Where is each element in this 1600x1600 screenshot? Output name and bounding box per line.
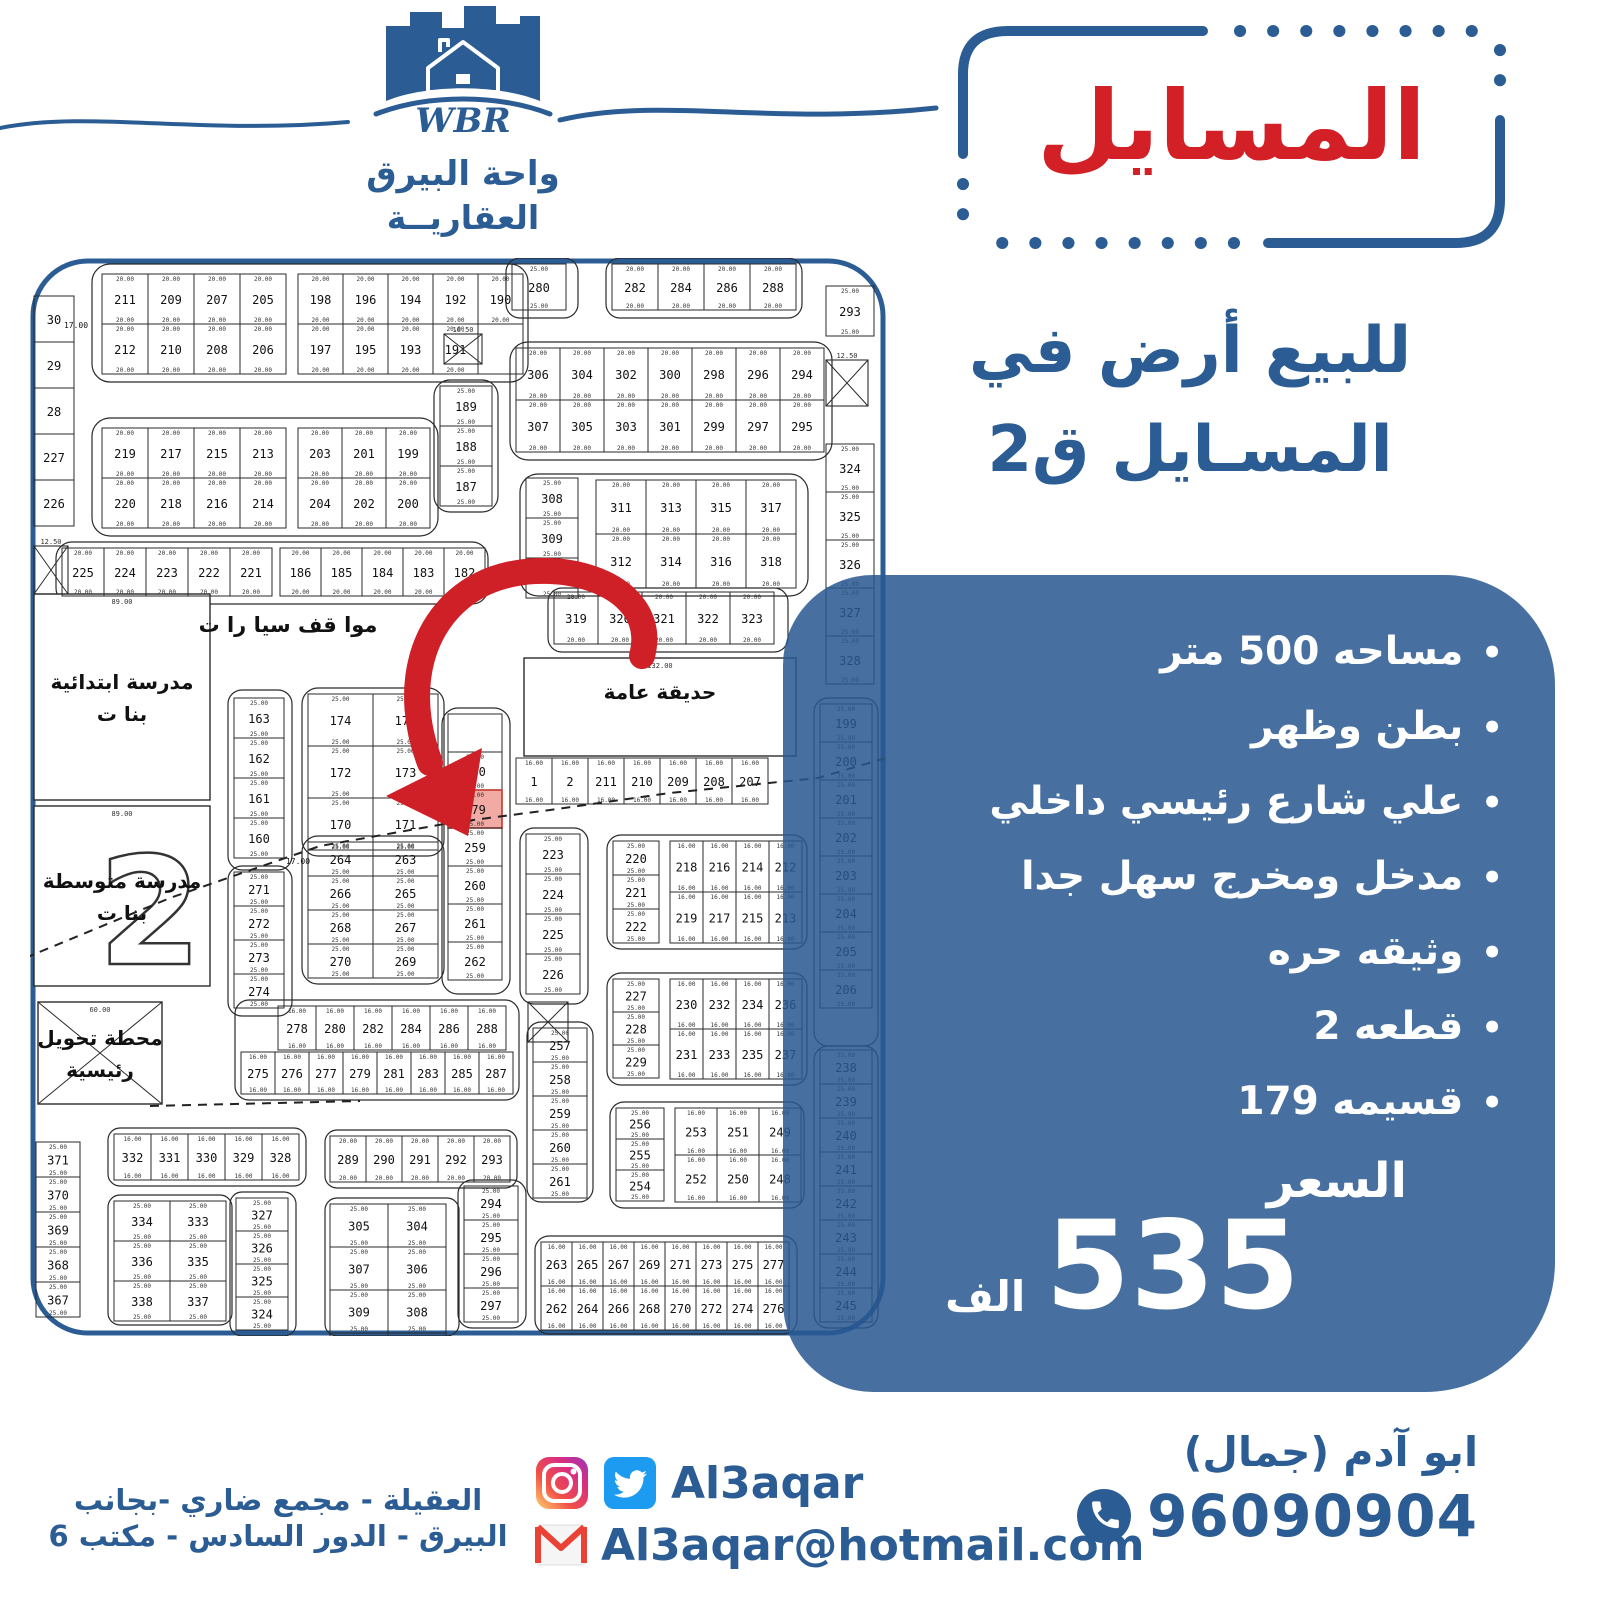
dim-label: 20.00: [208, 471, 226, 478]
dim-label: 25.00: [250, 851, 268, 858]
dim-label: 16.00: [385, 1087, 403, 1094]
dim-label: 25.00: [250, 771, 268, 778]
plot-number-210: 210: [160, 343, 182, 357]
plot-number-261: 261: [464, 917, 486, 931]
dim-label: 16.00: [234, 1173, 252, 1180]
dim-label: 16.00: [743, 1072, 761, 1079]
plot-number-287: 287: [485, 1067, 507, 1081]
plot-number-303: 303: [615, 420, 637, 434]
social-handle[interactable]: Al3aqar: [671, 1458, 863, 1509]
plot-number-259: 259: [464, 841, 486, 855]
dim-label: 20.00: [291, 589, 309, 596]
plot-number-186: 186: [290, 566, 312, 580]
dim-label: 16.00: [743, 894, 761, 901]
plot-number-294: 294: [791, 368, 813, 382]
plot-number-368: 368: [47, 1259, 69, 1273]
dim-label: 20.00: [356, 317, 374, 324]
dim-label: 25.00: [253, 1257, 271, 1264]
dim-label: 25.00: [250, 780, 268, 787]
dim-label: 20.00: [529, 393, 547, 400]
dim-label: 20.00: [355, 430, 373, 437]
plot-number-269: 269: [639, 1258, 661, 1272]
dim-label: 20.00: [208, 326, 226, 333]
plot-number-295: 295: [480, 1231, 502, 1245]
dim-label: 25.00: [133, 1274, 151, 1281]
dim-label: 25.00: [551, 1132, 569, 1139]
dim-label: 25.00: [331, 903, 349, 910]
plot-number-277: 277: [315, 1067, 337, 1081]
dim-label: 16.00: [197, 1136, 215, 1143]
plot-number-199: 199: [397, 447, 419, 461]
dim-label: 20.00: [712, 536, 730, 543]
dim-label: 20.00: [356, 367, 374, 374]
plot-number-215: 215: [742, 912, 764, 926]
gmail-icon[interactable]: [535, 1524, 587, 1566]
plot-number-282: 282: [362, 1022, 384, 1036]
plot-number-214: 214: [742, 861, 764, 875]
dim-label: 20.00: [116, 550, 134, 557]
dim-label: 25.00: [482, 1222, 500, 1229]
plot-number-294: 294: [480, 1197, 502, 1211]
dim-label: 16.00: [160, 1136, 178, 1143]
dim-label: 16.00: [764, 1323, 782, 1330]
dim-label: 16.00: [764, 1279, 782, 1286]
dim-label: 25.00: [482, 1256, 500, 1263]
dim-label: 16.00: [710, 885, 728, 892]
dim-label: 20.00: [162, 480, 180, 487]
dim-label: 20.00: [208, 521, 226, 528]
plot-number-173: 173: [395, 766, 417, 780]
dim-label: 16.00: [687, 1110, 705, 1117]
dim-label: 25.00: [250, 700, 268, 707]
dim-label: 25.00: [457, 419, 475, 426]
dim-label: 20.00: [311, 317, 329, 324]
dim-label: 25.00: [331, 946, 349, 953]
plot-number-232: 232: [709, 998, 731, 1012]
dim-label: 16.00: [741, 760, 759, 767]
dim-label: 25.00: [627, 877, 645, 884]
plot-number-273: 273: [701, 1258, 723, 1272]
dim-label: 25.00: [627, 868, 645, 875]
address-line2: البيرق - الدور السادس - مكتب 6: [38, 1518, 518, 1554]
dim-label: 16.00: [561, 760, 579, 767]
plot-number-250: 250: [727, 1173, 749, 1187]
dim-label: 20.00: [529, 445, 547, 452]
dim-label: 20.00: [116, 276, 134, 283]
dim-label: 16.00: [317, 1054, 335, 1061]
feature-item: •بطن وظهر: [989, 694, 1503, 769]
plot-number-266: 266: [330, 887, 352, 901]
dim-label: 25.00: [544, 907, 562, 914]
dim-label: 16.00: [729, 1195, 747, 1202]
plot-number-265: 265: [395, 887, 417, 901]
plot-number-219: 219: [676, 912, 698, 926]
plot-number-327: 327: [251, 1209, 273, 1223]
dim-label: 25.00: [49, 1284, 67, 1291]
feature-item: •وثيقه حره: [989, 919, 1503, 994]
plot-number-161: 161: [248, 792, 270, 806]
dim-label: 16.00: [547, 1288, 565, 1295]
dim-label: 25.00: [133, 1243, 151, 1250]
dim-label: 25.00: [331, 748, 349, 755]
plot-number-271: 271: [670, 1258, 692, 1272]
plot-number-211: 211: [595, 775, 617, 789]
dim-label: 25.00: [631, 1194, 649, 1201]
dim-label: 20.00: [158, 550, 176, 557]
dim-label: 16.00: [578, 1244, 596, 1251]
area-label: مدرسة ابتدائية: [51, 670, 194, 694]
plot-number-275: 275: [732, 1258, 754, 1272]
dim-label: 20.00: [116, 480, 134, 487]
plot-number-255: 255: [629, 1149, 651, 1163]
plot-number-233: 233: [709, 1048, 731, 1062]
dim-label: 25.00: [49, 1214, 67, 1221]
dim-label: 20.00: [356, 326, 374, 333]
plot-number-322: 322: [697, 612, 719, 626]
plot-number-207: 207: [206, 293, 228, 307]
dim-label: 16.00: [702, 1279, 720, 1286]
dim-label: 25.00: [466, 944, 484, 951]
dim-label: 20.00: [491, 317, 509, 324]
dim-label: 25.00: [631, 1172, 649, 1179]
dim-label: 25.00: [841, 485, 859, 492]
dim-label: 25.00: [627, 981, 645, 988]
dim-label: 20.00: [401, 317, 419, 324]
dim-label: 16.00: [743, 1031, 761, 1038]
plot-number-305: 305: [348, 1220, 370, 1234]
dim-label: 20.00: [401, 326, 419, 333]
dim-label: 20.00: [208, 276, 226, 283]
area-label: مدرسة متوسطة: [43, 869, 202, 893]
dim-label: 20.00: [793, 402, 811, 409]
dim-label: 25.00: [189, 1234, 207, 1241]
dim-label: 16.00: [640, 1244, 658, 1251]
plot-number-370: 370: [47, 1189, 69, 1203]
plot-number-197: 197: [310, 343, 332, 357]
dim-label: 12.50: [836, 352, 857, 360]
plot-number-227: 227: [625, 990, 647, 1004]
dim-label: 20.00: [661, 393, 679, 400]
dim-label: 20.00: [483, 1175, 501, 1182]
plot-number-252: 252: [685, 1173, 707, 1187]
plot-number-258: 258: [549, 1073, 571, 1087]
plot-number-28: 28: [47, 405, 61, 419]
dim-label: 25.00: [544, 836, 562, 843]
dim-label: 16.00: [123, 1173, 141, 1180]
dim-label: 20.00: [447, 1175, 465, 1182]
dim-label: 20.00: [705, 393, 723, 400]
dim-label: 20.00: [626, 303, 644, 310]
dim-label: 20.00: [373, 589, 391, 596]
dim-label: 20.00: [749, 445, 767, 452]
plot-number-337: 337: [187, 1295, 209, 1309]
plot-number-162: 162: [248, 752, 270, 766]
dim-label: 16.00: [609, 1279, 627, 1286]
plot-number-218: 218: [160, 497, 182, 511]
dim-label: 16.00: [710, 936, 728, 943]
twitter-icon[interactable]: [603, 1456, 657, 1510]
dim-label: 25.00: [482, 1315, 500, 1322]
plot-number-184: 184: [372, 566, 394, 580]
plot-number-260: 260: [464, 879, 486, 893]
dim-label: 20.00: [162, 276, 180, 283]
dim-label: 20.00: [573, 445, 591, 452]
dim-label: 20.00: [793, 393, 811, 400]
dim-label: 16.00: [677, 981, 695, 988]
dim-label: 16.00: [669, 760, 687, 767]
plot-number-220: 220: [114, 497, 136, 511]
dim-label: 20.00: [311, 480, 329, 487]
dim-label: 20.00: [401, 276, 419, 283]
dim-label: 25.00: [457, 468, 475, 475]
dim-label: 20.00: [712, 581, 730, 588]
dim-label: 20.00: [311, 326, 329, 333]
price-unit: الف: [945, 1272, 1025, 1327]
dim-label: 20.00: [567, 637, 585, 644]
dim-label: 20.00: [158, 589, 176, 596]
plot-number-267: 267: [608, 1258, 630, 1272]
dim-label: 20.00: [447, 1138, 465, 1145]
dim-label: 20.00: [491, 276, 509, 283]
plot-number-220: 220: [625, 852, 647, 866]
dim-label: 16.00: [326, 1043, 344, 1050]
dim-label: 25.00: [396, 912, 414, 919]
dim-label: 25.00: [49, 1275, 67, 1282]
dim-label: 25.00: [627, 1005, 645, 1012]
plot-number-205: 205: [252, 293, 274, 307]
plot-number-192: 192: [445, 293, 467, 307]
dim-label: 25.00: [331, 937, 349, 944]
dim-label: 16.00: [419, 1054, 437, 1061]
area-label: رئيسية: [66, 1058, 134, 1082]
dim-label: 20.00: [291, 550, 309, 557]
plot-number-211: 211: [114, 293, 136, 307]
plot-number-313: 313: [660, 501, 682, 515]
dim-label: 20.00: [617, 402, 635, 409]
plot-number-317: 317: [760, 501, 782, 515]
instagram-icon[interactable]: [535, 1456, 589, 1510]
offer-heading-line2: المسـايل ق2: [880, 401, 1500, 500]
plot-number-185: 185: [331, 566, 353, 580]
dim-label: 16.00: [123, 1136, 141, 1143]
dim-label: 25.00: [189, 1283, 207, 1290]
plot-number-281: 281: [383, 1067, 405, 1081]
dim-label: 16.00: [702, 1244, 720, 1251]
dim-label: 16.00: [729, 1148, 747, 1155]
dim-label: 25.00: [49, 1170, 67, 1177]
dim-label: 16.00: [687, 1157, 705, 1164]
plot-number-332: 332: [122, 1151, 144, 1165]
dim-label: 25.00: [331, 844, 349, 851]
dim-label: 25.00: [250, 874, 268, 881]
dim-label: 20.00: [162, 521, 180, 528]
dim-label: 25.00: [49, 1179, 67, 1186]
plot-number-221: 221: [625, 886, 647, 900]
plot-number-223: 223: [156, 566, 178, 580]
dim-label: 25.00: [841, 542, 859, 549]
plot-number-291: 291: [409, 1153, 431, 1167]
dim-label: 25.00: [396, 878, 414, 885]
dim-label: 25.00: [350, 1335, 368, 1336]
plot-number-215: 215: [206, 447, 228, 461]
dim-label: 20.00: [612, 536, 630, 543]
plot-number-297: 297: [480, 1299, 502, 1313]
dim-label: 16.00: [687, 1195, 705, 1202]
plot-number-319: 319: [565, 612, 587, 626]
plot-number-280: 280: [324, 1022, 346, 1036]
plot-number-295: 295: [791, 420, 813, 434]
plot-number-264: 264: [330, 853, 352, 867]
area-label: حديقة عامة: [604, 680, 717, 704]
dim-label: 20.00: [455, 550, 473, 557]
plot-number-204: 204: [309, 497, 331, 511]
dim-label: 20.00: [712, 527, 730, 534]
dim-label: 20.00: [116, 589, 134, 596]
dim-label: 25.00: [551, 1157, 569, 1164]
dim-label: 16.00: [733, 1244, 751, 1251]
dim-label: 25.00: [466, 935, 484, 942]
plot-number-183: 183: [413, 566, 435, 580]
dim-label: 20.00: [254, 521, 272, 528]
dim-label: 16.00: [326, 1008, 344, 1015]
dim-label: 20.00: [529, 402, 547, 409]
dim-label: 20.00: [355, 480, 373, 487]
dim-label: 25.00: [408, 1283, 426, 1290]
dim-label: 25.00: [350, 1249, 368, 1256]
dim-label: 16.00: [705, 797, 723, 804]
company-logo: WBR واحة البيرق العقاريــة: [358, 6, 568, 237]
dim-label: 16.00: [729, 1110, 747, 1117]
dim-label: 25.00: [457, 388, 475, 395]
dim-label: 16.00: [249, 1087, 267, 1094]
plot-number-253: 253: [685, 1126, 707, 1140]
plot-number-172: 172: [330, 766, 352, 780]
dim-label: 16.00: [677, 894, 695, 901]
dim-label: 20.00: [200, 589, 218, 596]
dim-label: 20.00: [375, 1138, 393, 1145]
plot-number-325: 325: [839, 510, 861, 524]
dim-label: 25.00: [543, 551, 561, 558]
dim-label: 20.00: [254, 326, 272, 333]
dim-label: 20.00: [446, 317, 464, 324]
dim-label: 20.00: [254, 471, 272, 478]
dim-label: 25.00: [530, 303, 548, 310]
dim-label: 25.00: [49, 1310, 67, 1317]
dim-label: 20.00: [332, 550, 350, 557]
dim-label: 25.00: [466, 973, 484, 980]
dim-label: 25.00: [350, 1283, 368, 1290]
plot-number-160: 160: [248, 832, 270, 846]
logo-skyline-icon: WBR: [368, 6, 558, 136]
dim-label: 25.00: [530, 266, 548, 273]
dim-label: 20.00: [254, 367, 272, 374]
dim-label: 20.00: [401, 367, 419, 374]
dim-label: 25.00: [631, 1163, 649, 1170]
plot-number-335: 335: [187, 1255, 209, 1269]
dim-label: 25.00: [466, 859, 484, 866]
dim-label: 25.00: [627, 1071, 645, 1078]
dim-label: 20.00: [672, 303, 690, 310]
dim-label: 20.00: [311, 367, 329, 374]
dim-label: 25.00: [627, 902, 645, 909]
plot-number-222: 222: [198, 566, 220, 580]
phone-number[interactable]: 96090904: [1147, 1482, 1478, 1550]
plot-number-289: 289: [337, 1153, 359, 1167]
dim-label: 16.00: [271, 1136, 289, 1143]
dim-label: 16.00: [764, 1244, 782, 1251]
dim-label: 16.00: [710, 1031, 728, 1038]
dim-label: 25.00: [253, 1233, 271, 1240]
plot-number-207: 207: [739, 775, 761, 789]
dim-label: 20.00: [705, 350, 723, 357]
dim-label: 25.00: [482, 1213, 500, 1220]
plot-number-275: 275: [247, 1067, 269, 1081]
email-address[interactable]: Al3aqar@hotmail.com: [601, 1520, 1145, 1571]
plot-number-216: 216: [206, 497, 228, 511]
dim-label: 20.00: [414, 589, 432, 596]
plot-number-297: 297: [747, 420, 769, 434]
dim-label: 25.00: [133, 1314, 151, 1321]
dim-label: 20.00: [356, 276, 374, 283]
plot-number-301: 301: [659, 420, 681, 434]
plot-number-201: 201: [353, 447, 375, 461]
plot-number-311: 311: [610, 501, 632, 515]
dim-label: 25.00: [253, 1299, 271, 1306]
plot-number-210: 210: [631, 775, 653, 789]
dim-label: 25.00: [396, 937, 414, 944]
dim-label: 16.00: [317, 1087, 335, 1094]
dim-label: 25.00: [543, 511, 561, 518]
plot-number-212: 212: [114, 343, 136, 357]
dim-label: 16.00: [687, 1148, 705, 1155]
dim-label: 25.00: [543, 480, 561, 487]
city-skyline-shape: [386, 6, 540, 101]
dim-label: 16.00: [487, 1087, 505, 1094]
dim-label: 20.00: [743, 637, 761, 644]
dim-label: 16.00: [710, 981, 728, 988]
dim-label: 20.00: [414, 550, 432, 557]
plot-number-206: 206: [252, 343, 274, 357]
dim-label: 20.00: [254, 430, 272, 437]
dim-label: 20.00: [573, 350, 591, 357]
plot-number-279: 279: [349, 1067, 371, 1081]
plot-number-309: 309: [541, 532, 563, 546]
plot-map-svg: مدرسة ابتدائيةبنا ت89.002مدرسة متوسطةبنا…: [30, 258, 888, 1336]
dim-label: 25.00: [250, 976, 268, 983]
plot-number-196: 196: [355, 293, 377, 307]
dim-label: 25.00: [253, 1200, 271, 1207]
dim-label: 20.00: [617, 393, 635, 400]
dim-label: 16.00: [271, 1173, 289, 1180]
dim-label: 16.00: [677, 1022, 695, 1029]
plot-number-269: 269: [395, 955, 417, 969]
plot-number-307: 307: [527, 420, 549, 434]
offer-heading: للبيع أرض في المسـايل ق2: [880, 302, 1500, 500]
dim-label: 25.00: [631, 1132, 649, 1139]
dim-label: 20.00: [529, 350, 547, 357]
dim-label: 25.00: [631, 1141, 649, 1148]
dim-label: 16.00: [283, 1054, 301, 1061]
plot-number-198: 198: [310, 293, 332, 307]
area-label: بنا ت: [97, 901, 147, 925]
dim-label: 16.00: [547, 1323, 565, 1330]
dim-label: 16.00: [733, 1323, 751, 1330]
dim-label: 25.00: [331, 800, 349, 807]
plot-number-221: 221: [240, 566, 262, 580]
dim-label: 20.00: [617, 350, 635, 357]
area-box: [524, 658, 796, 756]
dim-label: 16.00: [633, 797, 651, 804]
